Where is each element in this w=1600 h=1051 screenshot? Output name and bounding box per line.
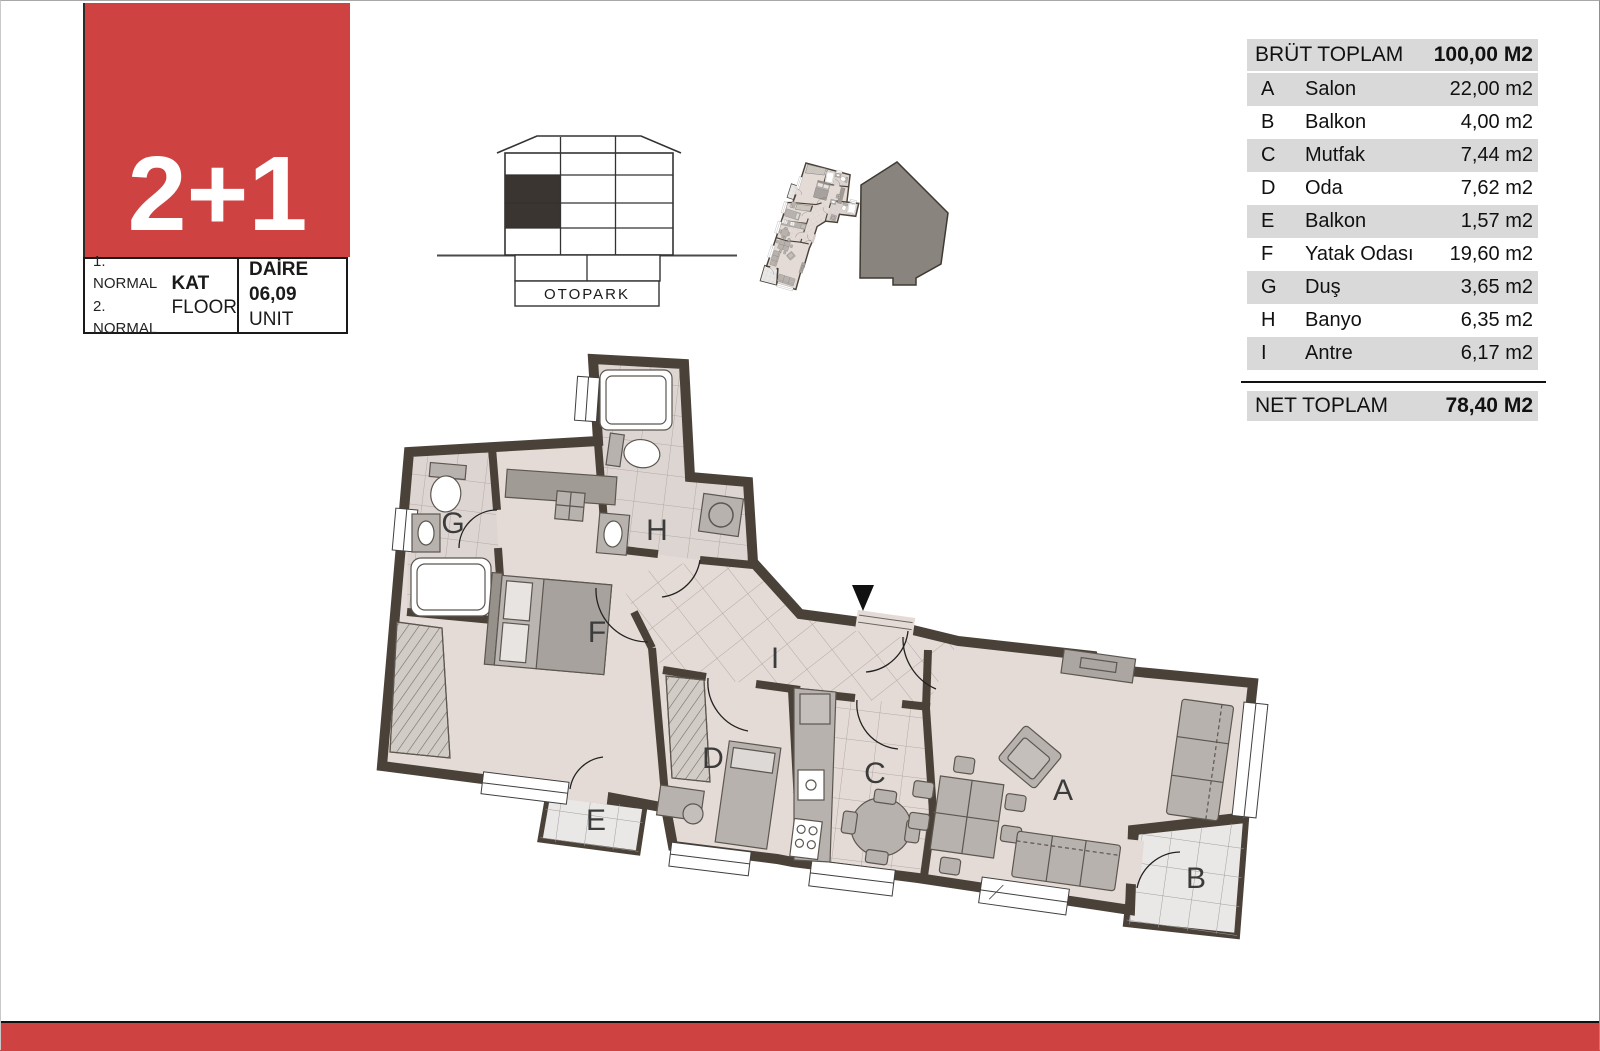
row-name: Oda xyxy=(1305,177,1461,200)
area-table-header: BRÜT TOPLAM 100,00 M2 xyxy=(1247,39,1538,71)
floor-label: FLOOR xyxy=(172,296,237,320)
row-letter: B xyxy=(1247,111,1305,134)
row-name: Balkon xyxy=(1305,111,1461,134)
unit-cell: DAİRE 06,09 UNIT xyxy=(239,259,346,332)
brut-toplam-value: 100,00 M2 xyxy=(1434,43,1538,67)
building-mass xyxy=(860,162,948,285)
key-plan xyxy=(759,159,948,300)
table-row: IAntre6,17 m2 xyxy=(1247,337,1538,370)
room-label-f: F xyxy=(588,616,606,649)
area-table-rows: ASalon22,00 m2 BBalkon4,00 m2 CMutfak7,4… xyxy=(1247,73,1538,370)
room-label-d: D xyxy=(702,742,724,775)
row-name: Duş xyxy=(1305,276,1461,299)
floor-item-2: 2. NORMAL xyxy=(93,296,158,341)
unit-label: UNIT xyxy=(249,308,346,333)
building-elevation: OTOPARK xyxy=(437,136,737,306)
table-row: DOda7,62 m2 xyxy=(1247,172,1538,205)
floor-item-1: 1. NORMAL xyxy=(93,251,158,296)
daire-label: DAİRE 06,09 xyxy=(249,258,346,307)
kat-label: KAT xyxy=(172,272,237,296)
row-letter: F xyxy=(1247,243,1305,266)
row-letter: G xyxy=(1247,276,1305,299)
row-area: 3,65 m2 xyxy=(1461,276,1538,299)
table-row: BBalkon4,00 m2 xyxy=(1247,106,1538,139)
row-name: Antre xyxy=(1305,342,1461,365)
table-row: ASalon22,00 m2 xyxy=(1247,73,1538,106)
row-letter: I xyxy=(1247,342,1305,365)
table-row: FYatak Odası19,60 m2 xyxy=(1247,238,1538,271)
table-row: CMutfak7,44 m2 xyxy=(1247,139,1538,172)
room-label-g: G xyxy=(441,507,464,540)
row-area: 7,44 m2 xyxy=(1461,144,1538,167)
table-row: HBanyo6,35 m2 xyxy=(1247,304,1538,337)
row-name: Mutfak xyxy=(1305,144,1461,167)
row-name: Salon xyxy=(1305,78,1450,101)
floor-plan-page: OTOPARK G H F I D C A E B 2+1 1. xyxy=(0,0,1600,1051)
room-label-b: B xyxy=(1186,862,1206,895)
brut-toplam-label: BRÜT TOPLAM xyxy=(1247,43,1403,67)
floor-unit-info: 1. NORMAL 2. NORMAL KAT FLOOR DAİRE 06,0… xyxy=(83,257,348,334)
room-label-i: I xyxy=(771,642,779,675)
row-name: Banyo xyxy=(1305,309,1461,332)
otopark-label: OTOPARK xyxy=(544,286,630,303)
bottom-accent-bar xyxy=(0,1021,1600,1051)
row-area: 22,00 m2 xyxy=(1450,78,1538,101)
table-row: GDuş3,65 m2 xyxy=(1247,271,1538,304)
net-toplam-label: NET TOPLAM xyxy=(1247,394,1388,418)
row-letter: H xyxy=(1247,309,1305,332)
row-letter: C xyxy=(1247,144,1305,167)
main-floor-plan xyxy=(382,359,1268,936)
area-table-footer: NET TOPLAM 78,40 M2 xyxy=(1247,391,1538,421)
net-toplam-value: 78,40 M2 xyxy=(1445,394,1538,418)
row-letter: D xyxy=(1247,177,1305,200)
row-letter: E xyxy=(1247,210,1305,233)
row-name: Yatak Odası xyxy=(1305,243,1450,266)
room-label-c: C xyxy=(864,757,886,790)
row-area: 6,35 m2 xyxy=(1461,309,1538,332)
table-separator xyxy=(1241,381,1546,383)
room-label-a: A xyxy=(1053,774,1073,807)
highlighted-floors xyxy=(505,175,560,228)
room-label-h: H xyxy=(646,514,668,547)
row-name: Balkon xyxy=(1305,210,1461,233)
unit-type-label: 2+1 xyxy=(128,152,308,257)
row-letter: A xyxy=(1247,78,1305,101)
entry-arrow-icon xyxy=(852,585,874,611)
row-area: 4,00 m2 xyxy=(1461,111,1538,134)
room-label-e: E xyxy=(586,804,606,837)
row-area: 1,57 m2 xyxy=(1461,210,1538,233)
unit-type-box: 2+1 xyxy=(83,3,350,257)
table-row: EBalkon1,57 m2 xyxy=(1247,205,1538,238)
floor-cell: 1. NORMAL 2. NORMAL KAT FLOOR xyxy=(85,259,239,332)
row-area: 6,17 m2 xyxy=(1461,342,1538,365)
row-area: 7,62 m2 xyxy=(1461,177,1538,200)
row-area: 19,60 m2 xyxy=(1450,243,1538,266)
